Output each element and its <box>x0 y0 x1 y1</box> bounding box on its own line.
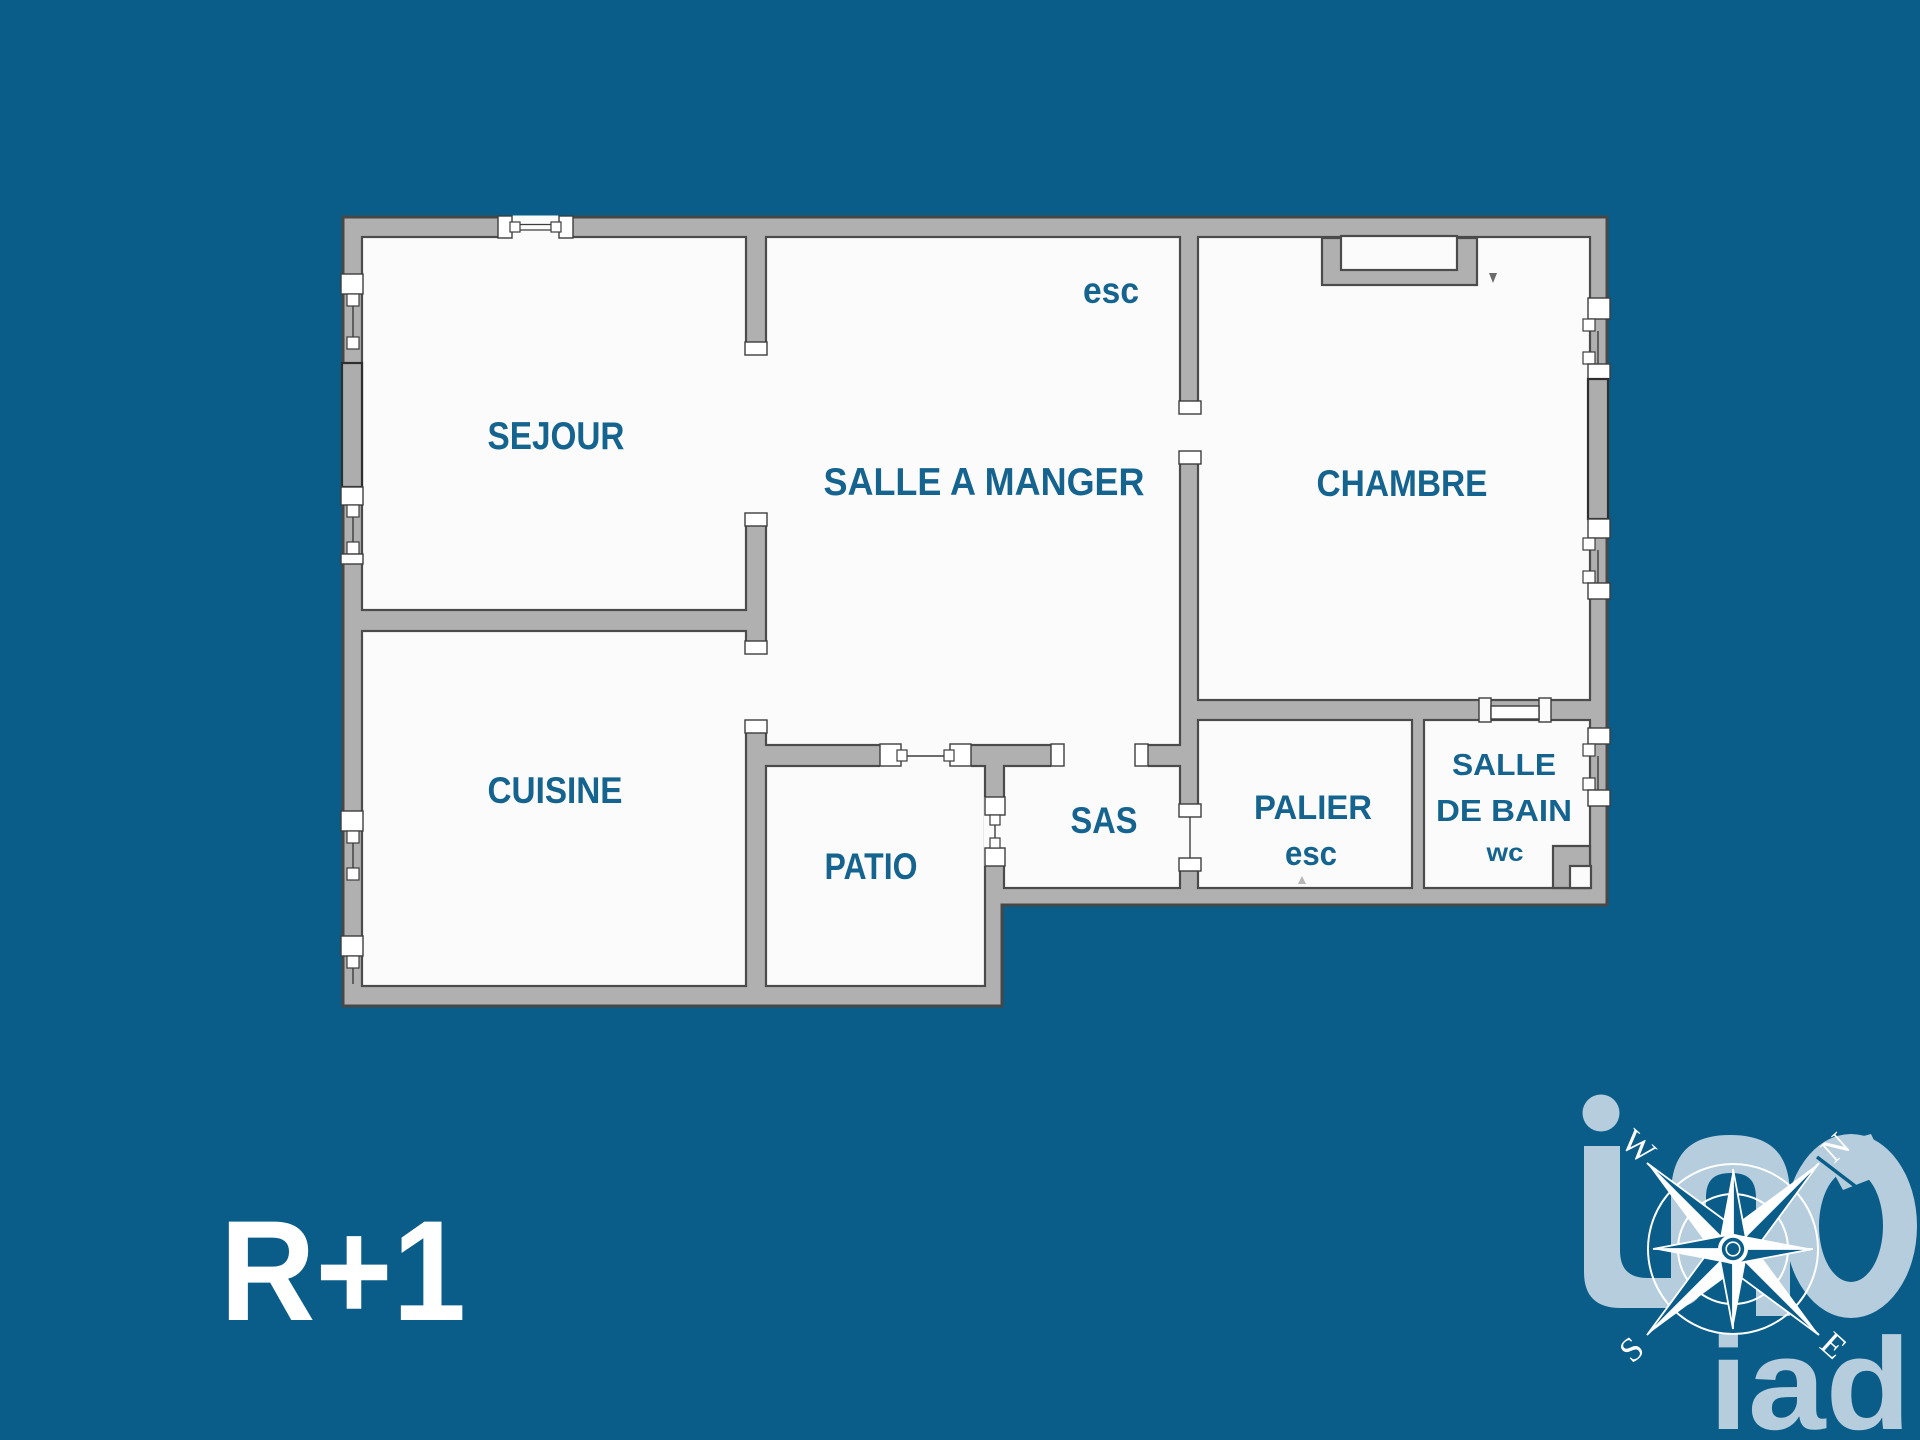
svg-text:DE BAIN: DE BAIN <box>1436 793 1572 828</box>
svg-text:PALIER: PALIER <box>1254 789 1372 827</box>
svg-text:esc: esc <box>1285 835 1337 873</box>
svg-text:SALLE A MANGER: SALLE A MANGER <box>824 461 1145 504</box>
svg-text:CUISINE: CUISINE <box>488 770 623 811</box>
svg-text:esc: esc <box>1083 270 1139 311</box>
svg-text:wc: wc <box>1485 839 1523 867</box>
svg-text:CHAMBRE: CHAMBRE <box>1317 463 1488 504</box>
svg-text:SALLE: SALLE <box>1452 747 1556 782</box>
svg-text:R+1: R+1 <box>220 1192 466 1351</box>
svg-text:SEJOUR: SEJOUR <box>488 415 625 458</box>
svg-text:PATIO: PATIO <box>825 846 918 887</box>
svg-text:SAS: SAS <box>1071 800 1138 841</box>
svg-text:iad: iad <box>1709 1310 1911 1440</box>
